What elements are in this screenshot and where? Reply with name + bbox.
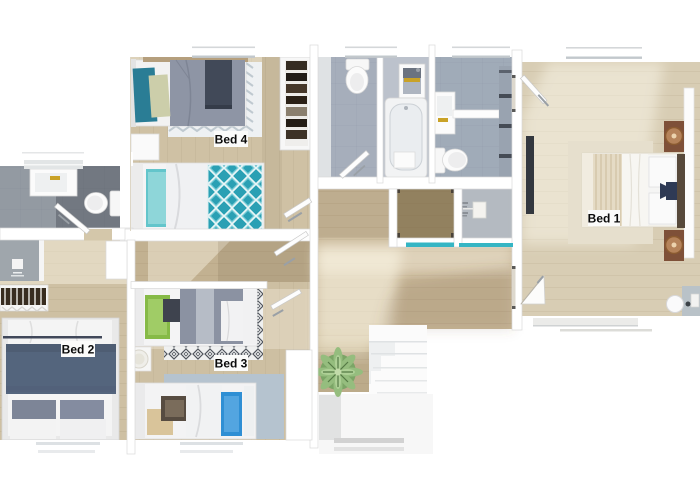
svg-text:Bed 2: Bed 2 <box>62 343 95 357</box>
svg-text:Bed 4: Bed 4 <box>215 133 248 147</box>
svg-text:Bed 3: Bed 3 <box>215 357 248 371</box>
svg-text:Bed 1: Bed 1 <box>588 212 621 226</box>
